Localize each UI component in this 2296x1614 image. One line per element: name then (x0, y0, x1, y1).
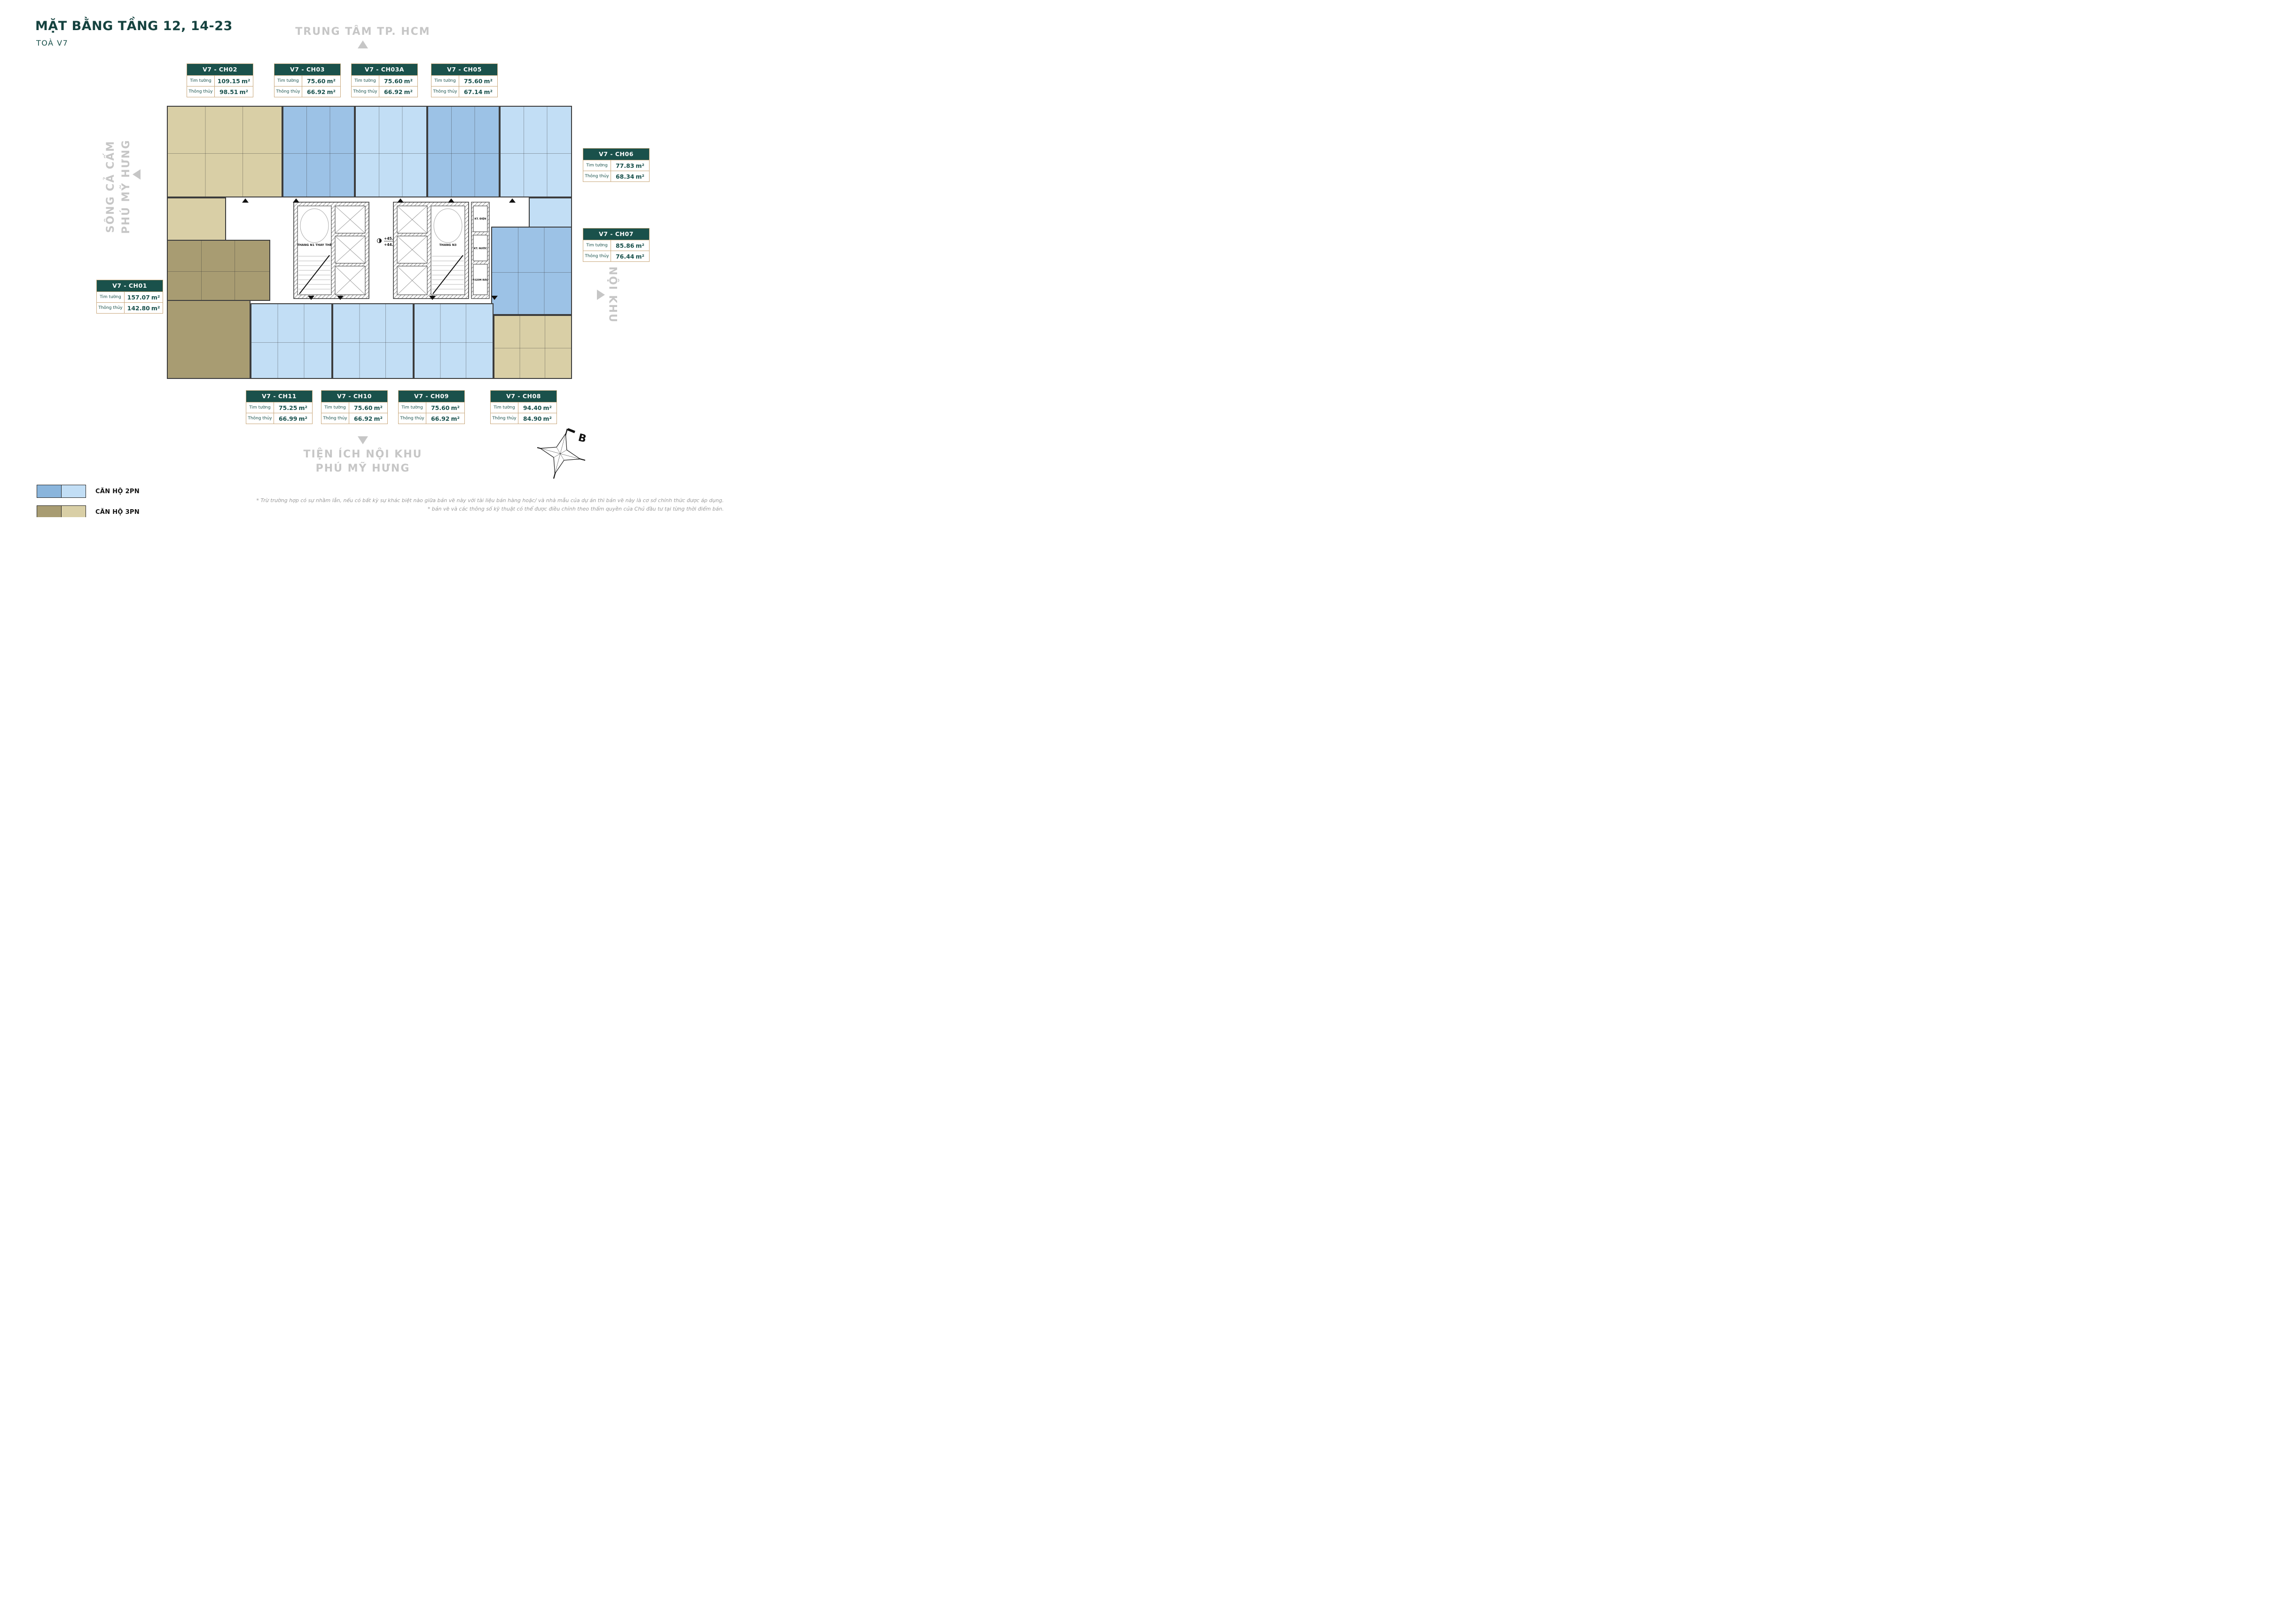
unit-card-value-thong_thuy: 66.92m² (426, 413, 464, 424)
entry-marker-icon (448, 198, 454, 203)
area-value: 77.83 (616, 162, 635, 169)
unit-card-value-thong_thuy: 67.14m² (459, 87, 497, 97)
area-unit: m² (451, 404, 460, 411)
unit-card-value-thong_thuy: 76.44m² (611, 251, 649, 261)
arrow-right-icon (597, 290, 605, 300)
unit-card-row-thong_thuy: Thông thủy142.80m² (97, 302, 163, 313)
arrow-up-icon (358, 40, 368, 48)
unit-card-value-tim_tuong: 75.60m² (349, 402, 387, 413)
legend-color-2pn-medium (37, 485, 62, 497)
area-value: 75.60 (464, 78, 483, 85)
unit-card-title: V7 - CH07 (583, 228, 649, 240)
apartment-ch01[interactable] (167, 300, 251, 379)
unit-card-ch11[interactable]: V7 - CH11Tim tường75.25m²Thông thủy66.99… (246, 390, 313, 424)
direction-label-bottom-line1: TIỆN ÍCH NỘI KHU (304, 448, 423, 462)
unit-card-row-thong_thuy: Thông thủy66.92m² (399, 413, 464, 424)
unit-card-ch03[interactable]: V7 - CH03Tim tường75.60m²Thông thủy66.92… (274, 63, 341, 97)
unit-card-value-thong_thuy: 98.51m² (215, 87, 253, 97)
elevators-right (397, 206, 427, 295)
unit-card-row-tim_tuong: Tim tường75.60m² (274, 75, 340, 86)
area-value: 75.25 (279, 404, 298, 411)
unit-card-value-tim_tuong: 109.15m² (215, 76, 253, 86)
apartment-ch01[interactable] (167, 240, 270, 301)
unit-card-value-thong_thuy: 66.92m² (302, 87, 340, 97)
unit-card-row-tim_tuong: Tim tường75.25m² (246, 402, 312, 413)
area-unit: m² (327, 78, 336, 85)
unit-card-row-thong_thuy: Thông thủy98.51m² (187, 86, 253, 97)
unit-card-row-thong_thuy: Thông thủy66.92m² (352, 86, 417, 97)
apartment-ch05[interactable] (427, 106, 500, 197)
unit-card-label-thong_thuy: Thông thủy (274, 87, 302, 97)
direction-label-top: TRUNG TÂM TP. HCM (295, 26, 430, 38)
unit-card-title: V7 - CH11 (246, 391, 312, 402)
footnotes: * Trừ trường hợp có sự nhầm lẫn, nếu có … (256, 496, 724, 513)
area-value: 67.14 (464, 88, 483, 95)
apartment-ch07[interactable] (491, 227, 572, 315)
apartment-ch10[interactable] (332, 303, 414, 379)
unit-card-ch09[interactable]: V7 - CH09Tim tường75.60m²Thông thủy66.92… (398, 390, 465, 424)
area-value: 68.34 (616, 173, 635, 180)
unit-card-label-thong_thuy: Thông thủy (321, 413, 349, 424)
core-right-block: THANG N3 (393, 202, 469, 299)
unit-card-value-tim_tuong: 94.40m² (518, 402, 556, 413)
unit-card-value-tim_tuong: 75.60m² (426, 402, 464, 413)
unit-card-value-tim_tuong: 75.25m² (274, 402, 312, 413)
direction-label-left: SÔNG CẢ CẤM PHÚ MỸ HƯNG (103, 140, 134, 234)
unit-card-title: V7 - CH02 (187, 64, 253, 75)
entry-marker-icon (509, 198, 516, 203)
area-unit: m² (374, 415, 383, 422)
apartment-ch02[interactable] (167, 106, 282, 197)
entry-marker-icon (491, 296, 498, 300)
unit-card-label-tim_tuong: Tim tường (187, 76, 215, 86)
unit-card-ch03a[interactable]: V7 - CH03ATim tường75.60m²Thông thủy66.9… (351, 63, 418, 97)
core-left-block: THANG N1 THAY THẾ (294, 202, 369, 299)
unit-card-row-thong_thuy: Thông thủy76.44m² (583, 251, 649, 261)
unit-card-label-tim_tuong: Tim tường (583, 160, 611, 171)
area-unit: m² (240, 88, 249, 95)
unit-card-row-thong_thuy: Thông thủy84.90m² (491, 413, 556, 424)
unit-card-row-tim_tuong: Tim tường75.60m² (321, 402, 387, 413)
unit-card-ch10[interactable]: V7 - CH10Tim tường75.60m²Thông thủy66.92… (321, 390, 388, 424)
core-diagram: THANG N1 THAY THẾ +45.000 +44.950 (275, 197, 491, 303)
entry-marker-icon (242, 198, 249, 203)
apartment-ch06[interactable] (529, 197, 572, 228)
unit-card-label-tim_tuong: Tim tường (431, 76, 459, 86)
area-unit: m² (404, 88, 413, 95)
direction-label-bottom: TIỆN ÍCH NỘI KHU PHÚ MỸ HƯNG (304, 448, 423, 475)
legend-swatch-2pn (37, 485, 86, 498)
unit-card-label-tim_tuong: Tim tường (583, 240, 611, 251)
tech-room-rac-label: P.GOM RÁC (473, 278, 488, 282)
apartment-ch06[interactable] (500, 106, 572, 197)
floor-plan: THANG N1 THAY THẾ +45.000 +44.950 (167, 106, 572, 379)
unit-card-ch07[interactable]: V7 - CH07Tim tường85.86m²Thông thủy76.44… (583, 228, 650, 262)
floorplan-page: MẶT BẰNG TẦNG 12, 14-23 TOÀ V7 TRUNG TÂM… (0, 0, 736, 517)
unit-card-value-thong_thuy: 66.99m² (274, 413, 312, 424)
area-unit: m² (636, 253, 645, 260)
apartment-ch09[interactable] (414, 303, 494, 379)
area-value: 84.90 (523, 415, 542, 422)
unit-card-value-thong_thuy: 142.80m² (125, 303, 163, 313)
unit-card-label-thong_thuy: Thông thủy (187, 87, 215, 97)
unit-card-row-tim_tuong: Tim tường75.60m² (399, 402, 464, 413)
area-unit: m² (151, 294, 160, 301)
unit-card-value-tim_tuong: 75.60m² (379, 76, 417, 86)
area-value: 75.60 (307, 78, 326, 85)
legend-swatch-3pn (37, 505, 86, 517)
unit-card-value-thong_thuy: 68.34m² (611, 171, 649, 181)
area-value: 98.51 (219, 88, 238, 95)
tech-room-dien-label: KT. ĐIỆN (475, 217, 486, 220)
area-unit: m² (543, 415, 552, 422)
legend-color-3pn-dark (37, 506, 62, 517)
unit-card-row-thong_thuy: Thông thủy66.92m² (274, 86, 340, 97)
area-unit: m² (299, 404, 308, 411)
area-unit: m² (543, 404, 552, 411)
unit-card-label-tim_tuong: Tim tường (246, 402, 274, 413)
unit-card-label-thong_thuy: Thông thủy (97, 303, 125, 313)
area-unit: m² (636, 242, 645, 249)
unit-card-title: V7 - CH09 (399, 391, 464, 402)
area-value: 94.40 (523, 404, 542, 411)
unit-card-title: V7 - CH10 (321, 391, 387, 402)
arrow-left-icon (133, 169, 141, 180)
unit-card-row-tim_tuong: Tim tường157.07m² (97, 291, 163, 302)
unit-card-row-tim_tuong: Tim tường109.15m² (187, 75, 253, 86)
unit-card-row-thong_thuy: Thông thủy66.92m² (321, 413, 387, 424)
unit-card-label-tim_tuong: Tim tường (352, 76, 379, 86)
stairwell-n1 (298, 206, 331, 295)
tech-shafts: KT. ĐIỆN KT. NƯỚC P.GOM RÁC (471, 202, 489, 299)
area-unit: m² (636, 173, 645, 180)
unit-card-row-tim_tuong: Tim tường94.40m² (491, 402, 556, 413)
unit-card-row-thong_thuy: Thông thủy66.99m² (246, 413, 312, 424)
legend-label-2pn: CĂN HỘ 2PN (95, 488, 140, 495)
unit-card-label-thong_thuy: Thông thủy (431, 87, 459, 97)
unit-card-title: V7 - CH01 (97, 280, 163, 291)
unit-card-value-tim_tuong: 77.83m² (611, 160, 649, 171)
apartment-ch03a[interactable] (355, 106, 427, 197)
area-unit: m² (636, 162, 645, 169)
unit-card-label-thong_thuy: Thông thủy (583, 171, 611, 181)
compass-north-label: B (577, 432, 588, 445)
area-value: 66.92 (354, 415, 373, 422)
unit-card-label-tim_tuong: Tim tường (491, 402, 518, 413)
direction-label-right: NỘI KHU (607, 267, 619, 323)
tech-room-nuoc-label: KT. NƯỚC (474, 247, 487, 250)
unit-card-label-tim_tuong: Tim tường (97, 292, 125, 302)
area-value: 157.07 (127, 294, 150, 301)
unit-card-value-thong_thuy: 66.92m² (349, 413, 387, 424)
area-unit: m² (299, 415, 308, 422)
entry-marker-icon (397, 198, 404, 203)
unit-card-ch02[interactable]: V7 - CH02Tim tường109.15m²Thông thủy98.5… (187, 63, 253, 97)
area-value: 66.92 (431, 415, 450, 422)
area-value: 66.99 (279, 415, 298, 422)
stair-n3-label: THANG N3 (439, 244, 457, 247)
apartment-ch03[interactable] (282, 106, 355, 197)
page-subtitle: TOÀ V7 (36, 39, 68, 47)
unit-card-label-thong_thuy: Thông thủy (491, 413, 518, 424)
unit-card-title: V7 - CH06 (583, 149, 649, 160)
legend-color-3pn-light (62, 506, 86, 517)
unit-card-title: V7 - CH03A (352, 64, 417, 75)
direction-label-bottom-line2: PHÚ MỸ HƯNG (304, 462, 423, 476)
unit-card-label-tim_tuong: Tim tường (321, 402, 349, 413)
entry-marker-icon (429, 296, 436, 300)
unit-card-title: V7 - CH03 (274, 64, 340, 75)
unit-card-row-thong_thuy: Thông thủy68.34m² (583, 171, 649, 181)
unit-card-value-thong_thuy: 84.90m² (518, 413, 556, 424)
area-value: 142.80 (127, 305, 150, 312)
unit-card-ch05[interactable]: V7 - CH05Tim tường75.60m²Thông thủy67.14… (431, 63, 498, 97)
area-unit: m² (484, 78, 493, 85)
footnote-line1: * Trừ trường hợp có sự nhầm lẫn, nếu có … (256, 496, 724, 505)
entry-marker-icon (308, 296, 314, 300)
unit-card-ch08[interactable]: V7 - CH08Tim tường94.40m²Thông thủy84.90… (490, 390, 557, 424)
unit-card-title: V7 - CH05 (431, 64, 497, 75)
unit-card-ch06[interactable]: V7 - CH06Tim tường77.83m²Thông thủy68.34… (583, 148, 650, 182)
unit-card-row-tim_tuong: Tim tường75.60m² (431, 75, 497, 86)
area-value: 75.60 (354, 404, 373, 411)
elevators-left (335, 206, 365, 295)
area-value: 75.60 (384, 78, 403, 85)
area-value: 66.92 (384, 88, 403, 95)
unit-card-label-tim_tuong: Tim tường (274, 76, 302, 86)
unit-card-label-tim_tuong: Tim tường (399, 402, 426, 413)
area-value: 109.15 (218, 78, 240, 85)
compass-rose: B (533, 425, 589, 481)
legend-row-3pn: CĂN HỘ 3PN (37, 505, 140, 517)
entry-marker-icon (337, 296, 344, 300)
area-unit: m² (242, 78, 251, 85)
stairwell-n3 (431, 206, 465, 295)
unit-card-row-tim_tuong: Tim tường77.83m² (583, 160, 649, 171)
area-value: 76.44 (616, 253, 635, 260)
apartment-ch11[interactable] (251, 303, 332, 379)
area-unit: m² (404, 78, 413, 85)
area-unit: m² (374, 404, 383, 411)
unit-card-label-thong_thuy: Thông thủy (246, 413, 274, 424)
arrow-down-icon (358, 436, 368, 444)
unit-card-row-thong_thuy: Thông thủy67.14m² (431, 86, 497, 97)
entry-marker-icon (293, 198, 299, 203)
area-unit: m² (484, 88, 493, 95)
unit-card-row-tim_tuong: Tim tường75.60m² (352, 75, 417, 86)
area-unit: m² (327, 88, 336, 95)
legend-row-2pn: CĂN HỘ 2PN (37, 485, 140, 498)
legend-label-3pn: CĂN HỘ 3PN (95, 509, 140, 516)
unit-card-value-tim_tuong: 75.60m² (302, 76, 340, 86)
unit-card-value-tim_tuong: 157.07m² (125, 292, 163, 302)
unit-card-title: V7 - CH08 (491, 391, 556, 402)
direction-label-left-line2: PHÚ MỸ HƯNG (118, 140, 134, 234)
apartment-ch08[interactable] (494, 315, 572, 379)
unit-card-value-thong_thuy: 66.92m² (379, 87, 417, 97)
area-value: 85.86 (616, 242, 635, 249)
unit-card-label-thong_thuy: Thông thủy (583, 251, 611, 261)
area-value: 75.60 (431, 404, 450, 411)
unit-card-label-thong_thuy: Thông thủy (352, 87, 379, 97)
legend-color-2pn-light (62, 485, 86, 497)
direction-label-left-line1: SÔNG CẢ CẤM (103, 140, 118, 234)
area-unit: m² (151, 305, 160, 312)
page-title: MẶT BẰNG TẦNG 12, 14-23 (35, 19, 233, 33)
unit-card-row-tim_tuong: Tim tường85.86m² (583, 240, 649, 251)
unit-card-ch01[interactable]: V7 - CH01Tim tường157.07m²Thông thủy142.… (96, 280, 163, 314)
unit-card-label-thong_thuy: Thông thủy (399, 413, 426, 424)
unit-card-value-tim_tuong: 75.60m² (459, 76, 497, 86)
apartment-ch02[interactable] (167, 197, 226, 241)
area-value: 66.92 (307, 88, 326, 95)
area-unit: m² (451, 415, 460, 422)
footnote-line2: * bản vẽ và các thông số kỹ thuật có thể… (256, 505, 724, 513)
unit-card-value-tim_tuong: 85.86m² (611, 240, 649, 251)
